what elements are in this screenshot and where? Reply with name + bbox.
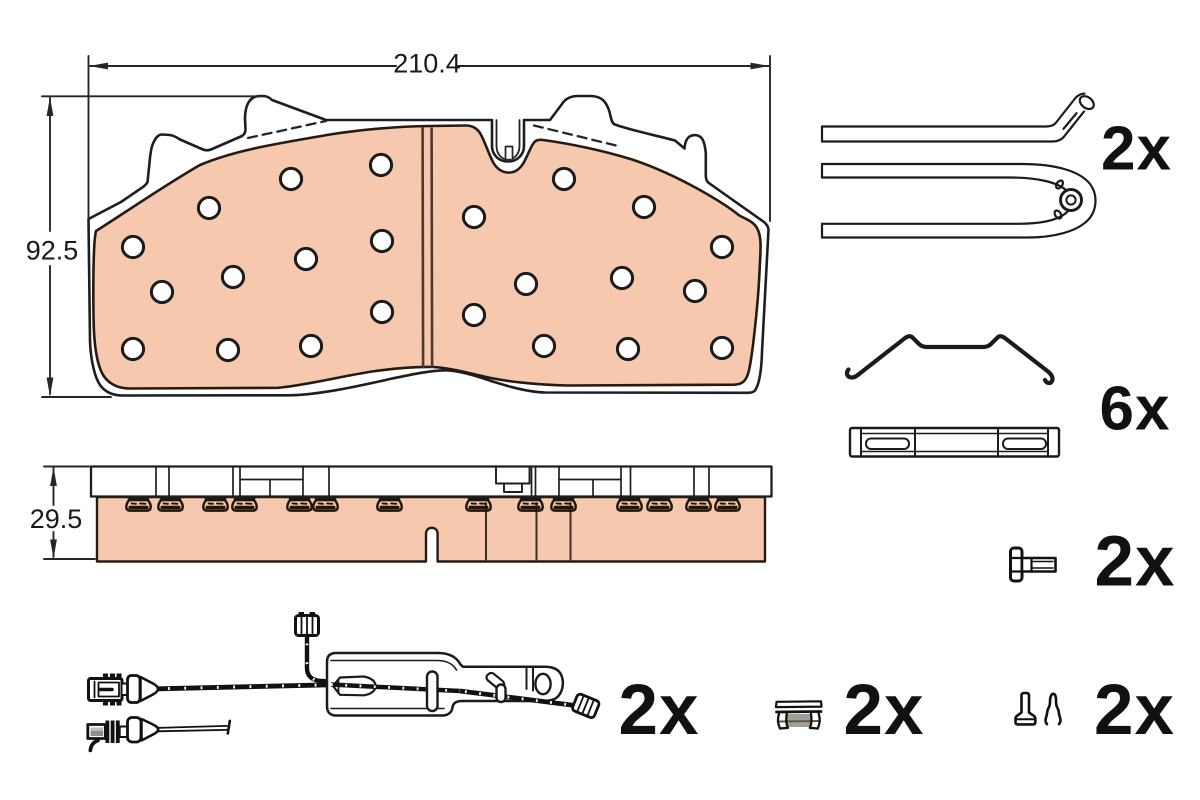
svg-text:6x: 6x <box>1100 375 1171 444</box>
svg-text:2x: 2x <box>1101 115 1172 184</box>
svg-text:210.4: 210.4 <box>393 49 461 79</box>
svg-text:2x: 2x <box>619 671 700 750</box>
svg-text:2x: 2x <box>1094 671 1175 750</box>
svg-text:2x: 2x <box>844 671 925 750</box>
svg-text:29.5: 29.5 <box>30 504 83 534</box>
svg-text:92.5: 92.5 <box>26 236 79 266</box>
svg-text:2x: 2x <box>1095 523 1176 602</box>
